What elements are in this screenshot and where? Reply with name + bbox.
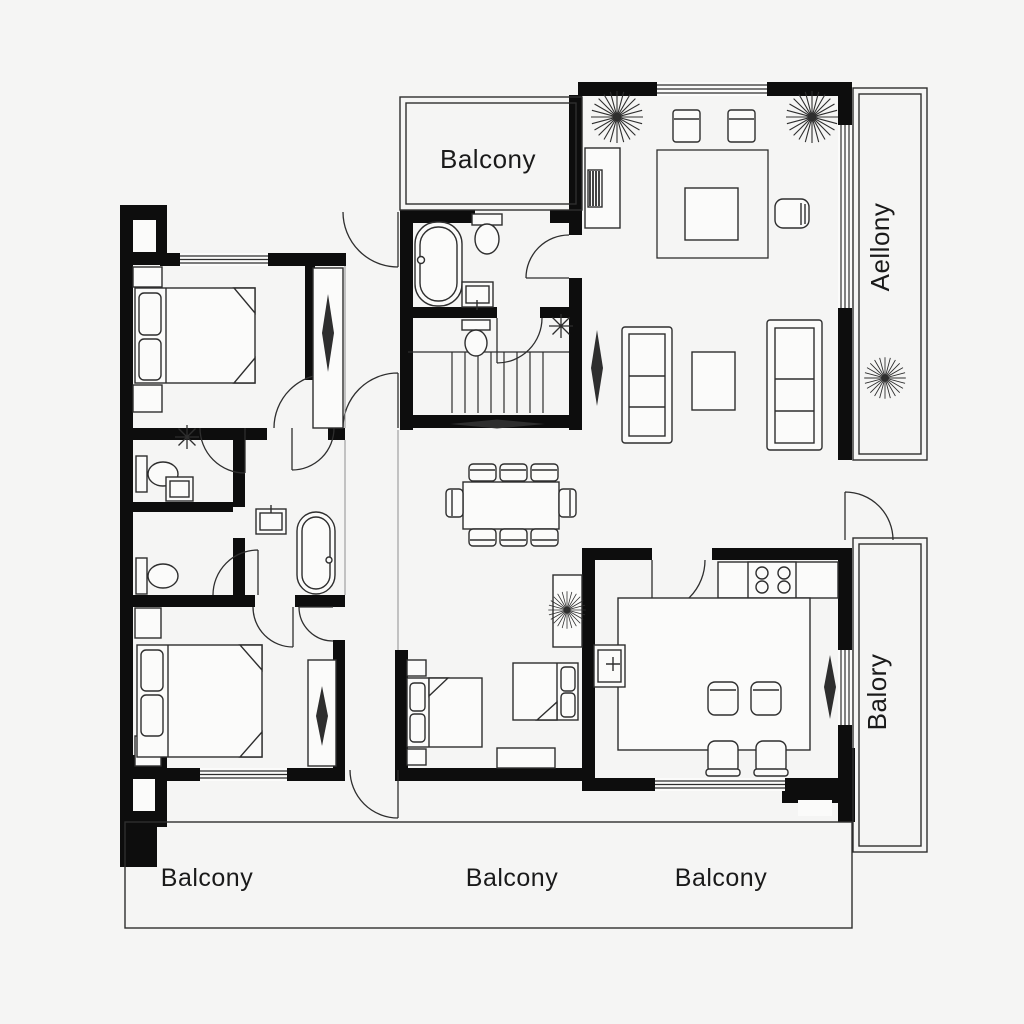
chair	[706, 741, 740, 776]
coffee-table	[685, 188, 738, 240]
nightstand	[135, 608, 161, 638]
armchair	[673, 110, 700, 142]
bathtub	[415, 222, 462, 306]
plant-icon	[864, 357, 906, 399]
sink	[256, 505, 286, 534]
sink	[594, 645, 625, 687]
chair	[754, 741, 788, 776]
window-arrow-icon	[591, 330, 603, 406]
staircase	[408, 352, 569, 413]
door-arc	[350, 770, 398, 818]
single-bed	[513, 663, 578, 720]
plant-icon	[548, 591, 585, 628]
toilet	[462, 320, 490, 356]
door-arc	[253, 607, 293, 647]
balcony-bottom-right-label: Balcony	[675, 864, 767, 892]
door-arc	[299, 607, 333, 641]
sofa-table	[692, 352, 735, 410]
armchair	[728, 110, 755, 142]
window-arrow-icon	[824, 655, 836, 719]
bathtub	[297, 512, 335, 594]
sofa	[767, 320, 822, 450]
toilet	[472, 214, 502, 254]
door-arc	[526, 235, 569, 278]
floor-plan-drawing: Balcony Aellony Balory Balcony Balcony B…	[0, 0, 1024, 1024]
kitchen-island	[618, 598, 810, 750]
nightstand	[133, 385, 162, 412]
sink	[166, 477, 193, 501]
balcony-bottom-center-label: Balcony	[466, 864, 558, 892]
stove	[748, 562, 796, 598]
chair	[469, 529, 496, 546]
chair	[469, 464, 496, 481]
door-arc	[292, 428, 334, 470]
nightstand	[407, 749, 426, 765]
chair	[559, 489, 576, 517]
chair	[500, 464, 527, 481]
double-bed	[135, 288, 255, 383]
plant-icon	[786, 91, 838, 143]
nightstand	[407, 660, 426, 676]
floor-plan-page: Balcony Aellony Balory Balcony Balcony B…	[0, 0, 1024, 1024]
chair	[500, 529, 527, 546]
low-table	[497, 748, 555, 768]
star-icon	[175, 425, 199, 449]
single-bed	[407, 678, 482, 747]
door-arc	[343, 373, 398, 428]
chair	[531, 464, 558, 481]
balcony-bottom-left-label: Balcony	[161, 864, 253, 892]
stool	[708, 682, 738, 715]
dining-table	[463, 482, 559, 529]
sofa	[622, 327, 672, 443]
thin-partitions	[345, 266, 398, 650]
star-icon	[549, 314, 573, 338]
nightstand	[133, 267, 162, 287]
chair	[446, 489, 463, 517]
balcony-right-upper-label: Aellony	[865, 203, 895, 292]
balcony-top-label: Balcony	[440, 144, 536, 174]
toilet	[136, 558, 178, 594]
door-arc	[845, 492, 893, 540]
door-arc	[343, 212, 398, 267]
double-bed	[137, 645, 262, 757]
side-chair	[775, 199, 809, 228]
chair	[531, 529, 558, 546]
sink	[462, 282, 493, 310]
stool	[751, 682, 781, 715]
balcony-right-lower-label: Balory	[862, 654, 892, 731]
plant-icon	[591, 91, 643, 143]
